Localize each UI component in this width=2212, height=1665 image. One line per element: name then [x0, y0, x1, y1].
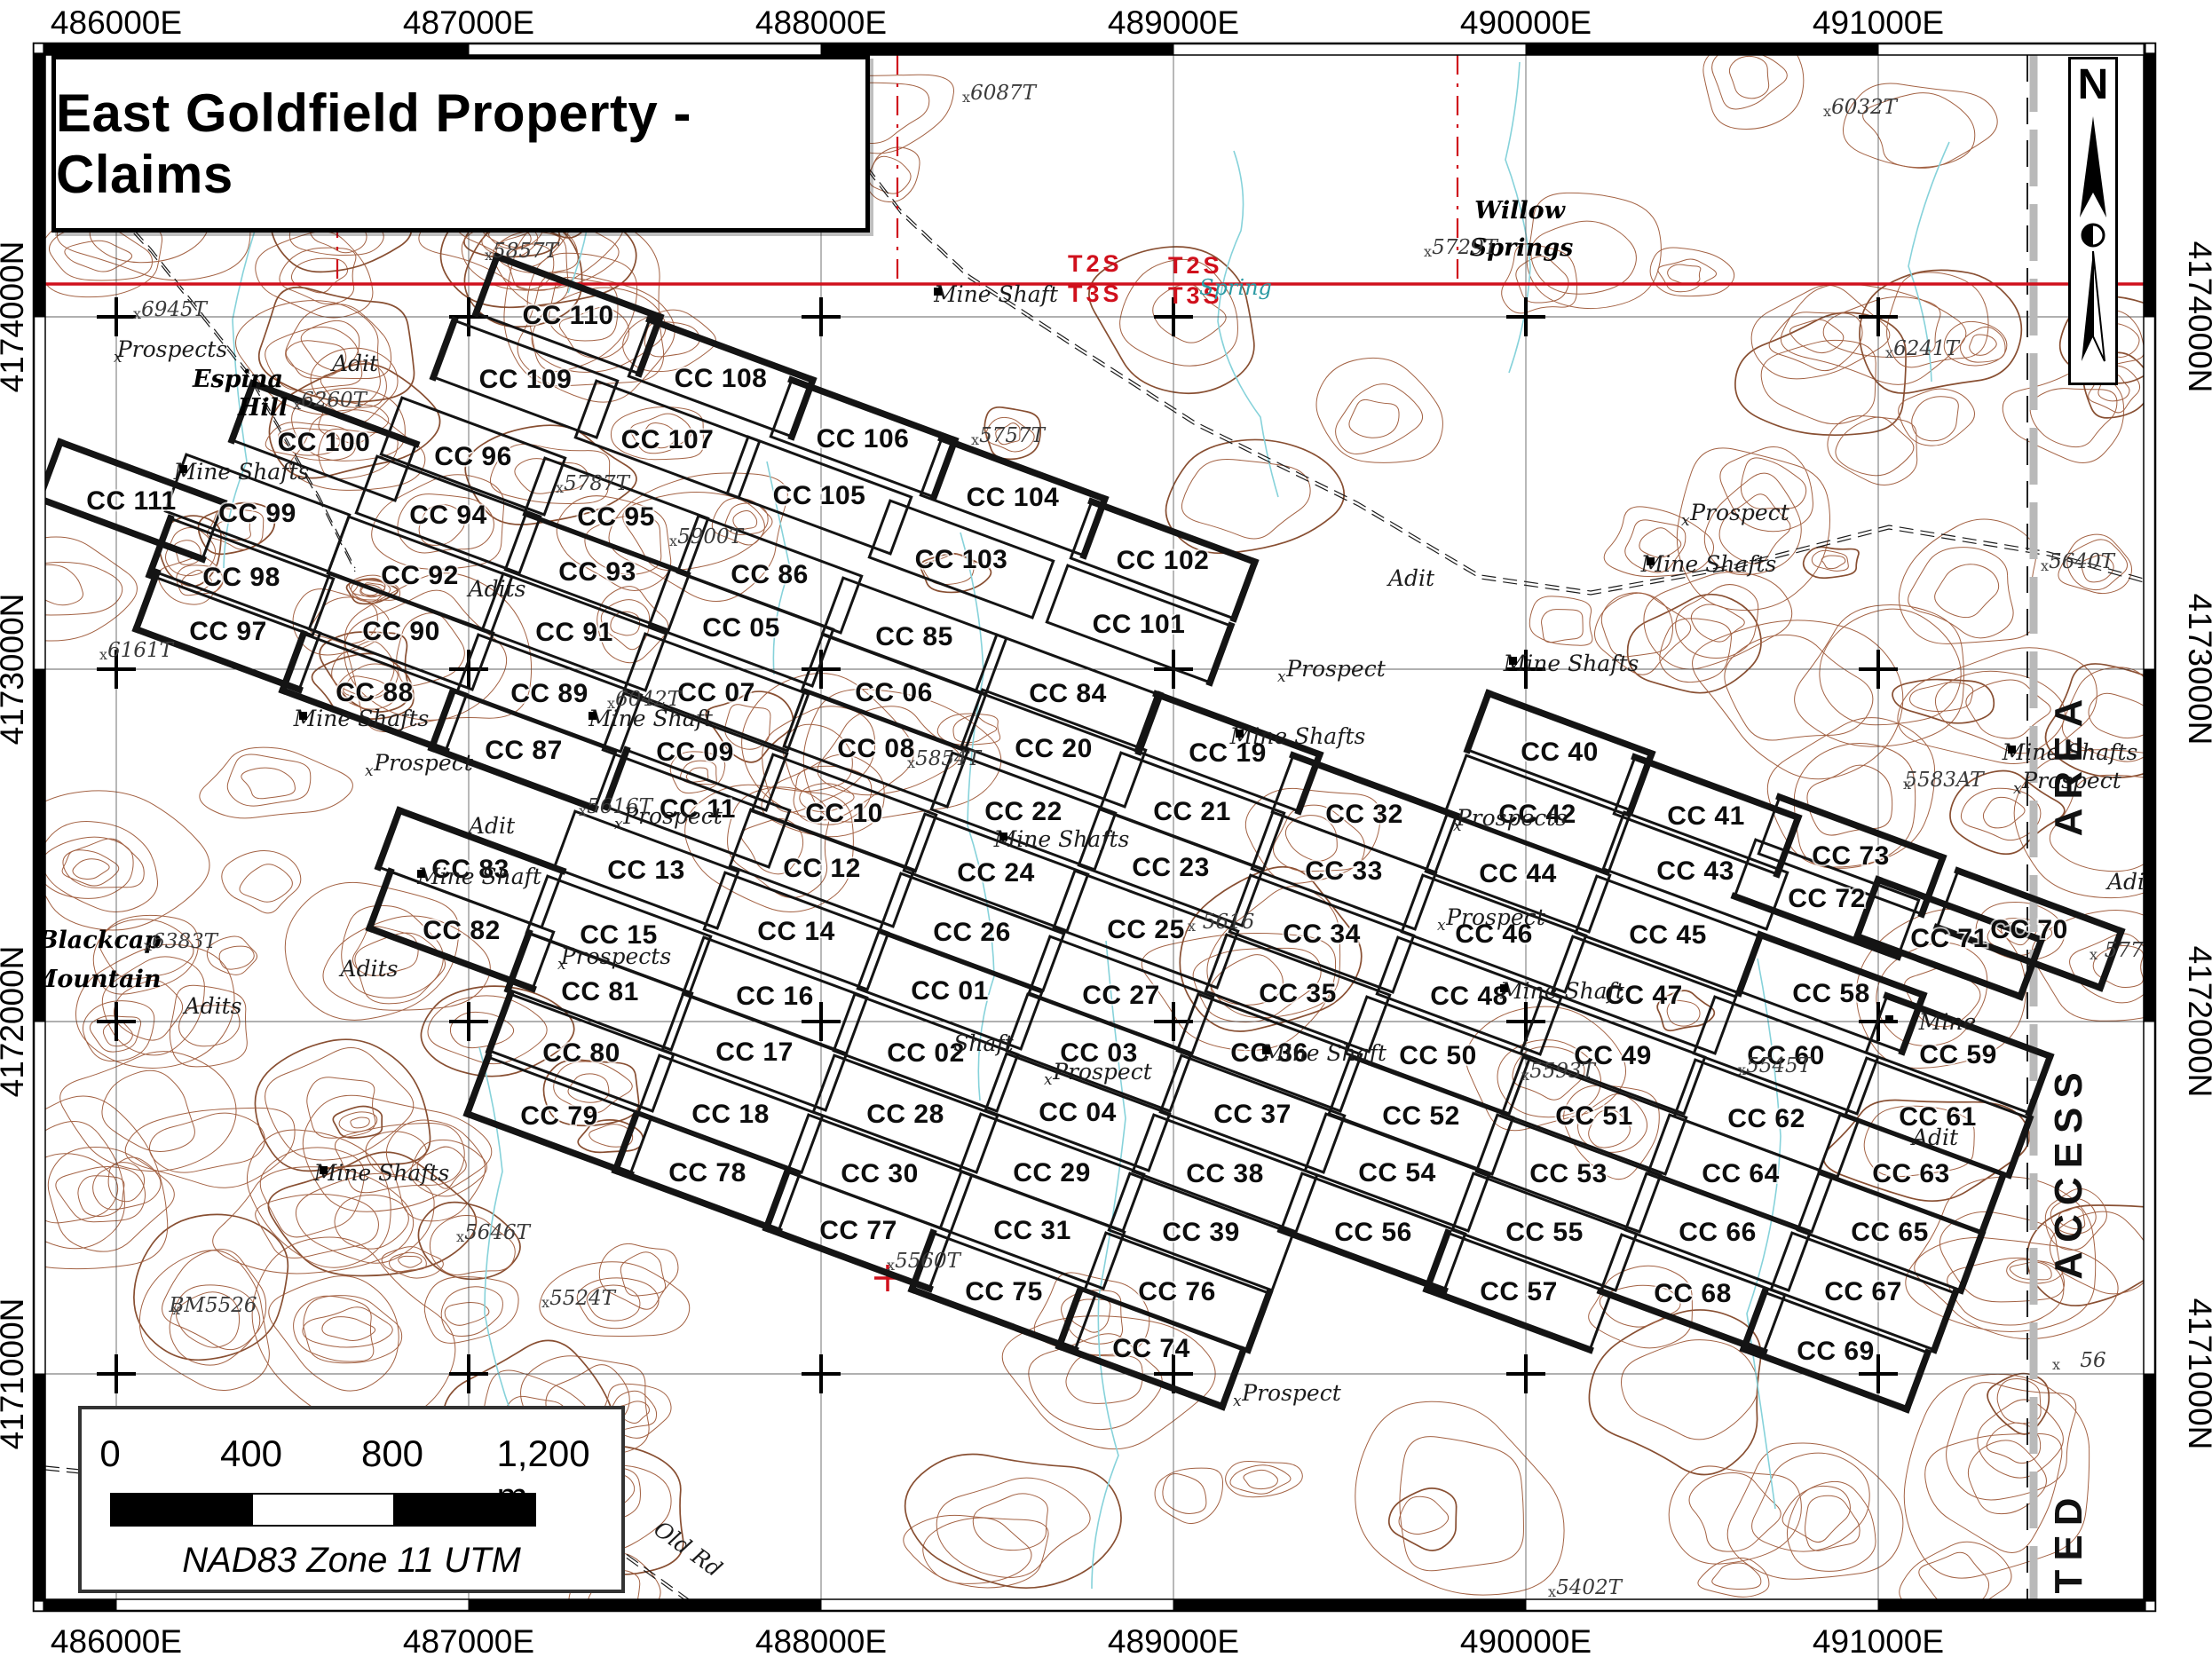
feature-label: Prospects: [116, 336, 227, 362]
claim-label: CC 05: [702, 613, 780, 643]
elevation-x-symbol: x: [144, 937, 152, 954]
claim-label: CC 94: [409, 501, 487, 530]
claim-label: CC 90: [362, 617, 440, 646]
place-label: Hill: [237, 394, 288, 422]
claim-label: CC 106: [817, 424, 910, 454]
elevation-label: 6087T: [970, 82, 1038, 105]
easting-label-bottom: 488000E: [755, 1623, 887, 1660]
claim-label: CC 04: [1039, 1098, 1117, 1127]
claim-label: CC 35: [1259, 979, 1337, 1008]
mine-symbol: [589, 712, 596, 720]
claim-label: CC 101: [1093, 610, 1186, 639]
easting-label-bottom: 490000E: [1460, 1623, 1592, 1660]
feature-label: Adit: [1386, 565, 1435, 591]
claim-label: CC 17: [715, 1038, 794, 1067]
place-label: Willow: [1474, 197, 1567, 225]
elevation-x-symbol: x: [971, 431, 979, 448]
elevation-label: 5857T: [493, 240, 560, 263]
neatline-segment: [1173, 43, 1526, 55]
claim-label: CC 23: [1132, 853, 1210, 882]
mine-symbol: [1885, 1015, 1893, 1023]
claim-label: CC 28: [866, 1100, 944, 1129]
feature-label: Mine Shafts: [993, 826, 1130, 852]
elevation-x-symbol: x: [2090, 946, 2097, 963]
mine-symbol: [1236, 730, 1244, 738]
feature-label: Adit: [467, 813, 516, 839]
feature-label: Prospects: [560, 943, 671, 969]
easting-label-top: 487000E: [403, 4, 534, 41]
claim-label: CC 50: [1399, 1041, 1477, 1070]
neatline-segment: [2144, 1374, 2155, 1611]
feature-label: Adit: [1910, 1124, 1959, 1150]
claim-label: CC 100: [278, 428, 371, 457]
elevation-label: 6260T: [301, 389, 368, 412]
claim-label: CC 37: [1213, 1100, 1292, 1129]
northing-label-left: 4172000N: [0, 946, 30, 1098]
feature-label: Adits: [183, 993, 242, 1019]
easting-label-top: 489000E: [1108, 4, 1239, 41]
feature-label: Prospect: [373, 750, 473, 776]
mine-symbol: [179, 465, 187, 473]
feature-label: Adit: [330, 351, 379, 376]
elevation-label: 6161T: [107, 639, 175, 662]
claim-label: CC 104: [967, 483, 1060, 512]
map-title-box: East Goldfield Property - Claims: [51, 55, 870, 233]
elevation-label: 5787T: [564, 472, 631, 495]
elevation-x-symbol: x: [1424, 243, 1432, 260]
feature-label: Mine Shaft: [1261, 1040, 1387, 1066]
elevation-label: 5900T: [677, 525, 745, 548]
neatline-corner: [34, 43, 43, 53]
elevation-label: 5616: [1203, 911, 1255, 934]
place-label: Blackcap: [37, 927, 162, 954]
claim-label: CC 06: [855, 678, 933, 707]
feature-label: Prospect: [622, 803, 723, 829]
elevation-x-symbol: x: [541, 1294, 549, 1311]
north-label: N: [2071, 59, 2115, 111]
elevation-label: 5545T: [1746, 1054, 1813, 1077]
neatline-corner: [2145, 43, 2155, 53]
prospect-x-symbol: x: [1044, 1071, 1053, 1089]
township-label: T3S: [1068, 280, 1123, 307]
feature-label: Mine Shafts: [1503, 651, 1639, 676]
claim-label: CC 08: [837, 734, 915, 763]
map-page: T2ST2ST3ST3SCC 110CC 109CC 108CC 100CC 9…: [0, 0, 2212, 1665]
elevation-label: 5402T: [1556, 1576, 1623, 1599]
claim-label: CC 70: [1990, 915, 2068, 944]
mine-symbol: [320, 1166, 328, 1174]
neatline-segment: [469, 43, 821, 55]
elevation-label: 5729T: [1432, 236, 1499, 259]
claim-label: CC 81: [561, 977, 639, 1006]
claim-label: CC 09: [656, 738, 734, 767]
prospect-x-symbol: x: [614, 816, 623, 833]
claim-label: CC 57: [1480, 1277, 1558, 1306]
claim-label: CC 103: [915, 545, 1008, 574]
neatline-segment: [2144, 317, 2155, 669]
elevation-x-symbol: x: [1738, 1061, 1746, 1078]
neatline-corner: [2145, 1601, 2155, 1611]
claim-label: CC 91: [535, 618, 613, 647]
place-label: Espina: [192, 366, 283, 393]
northing-label-right: 4172000N: [2182, 946, 2212, 1098]
elevation-x-symbol: x: [962, 89, 970, 106]
claim-label: CC 99: [218, 499, 296, 528]
elevation-label: 6032T: [1831, 96, 1899, 119]
elevation-x-symbol: x: [172, 1301, 180, 1318]
feature-label: Mine Shafts: [1640, 551, 1777, 577]
mine-symbol: [1509, 657, 1517, 665]
claim-label: CC 89: [510, 679, 589, 708]
claim-label: CC 93: [558, 557, 636, 587]
elevation-x-symbol: x: [579, 802, 587, 819]
claim-label: CC 12: [783, 854, 861, 883]
neatline-segment: [34, 1374, 45, 1611]
prospect-x-symbol: x: [1437, 917, 1446, 935]
mine-symbol: [999, 832, 1007, 840]
mine-symbol: [2008, 746, 2016, 754]
elevation-label: 5560T: [895, 1250, 962, 1273]
north-arrow-icon: [2071, 111, 2115, 377]
claim-label: CC 66: [1679, 1218, 1757, 1247]
neatline-segment: [116, 43, 469, 55]
claim-label: CC 85: [875, 622, 953, 651]
feature-label: Mine Shafts: [1229, 723, 1366, 749]
mine-symbol: [299, 712, 307, 720]
feature-label: Mine Shaft: [933, 281, 1059, 307]
elevation-x-symbol: x: [1885, 344, 1893, 361]
claim-label: CC 92: [381, 561, 459, 590]
claim-label: CC 59: [1919, 1040, 1997, 1069]
claim-label: CC 102: [1117, 546, 1210, 575]
claim-label: CC 105: [773, 481, 866, 510]
elevation-x-symbol: x: [1521, 1067, 1529, 1084]
mine-symbol: [1647, 557, 1655, 565]
claim-label: CC 24: [957, 858, 1035, 888]
claim-label: CC 111: [86, 486, 176, 516]
claim-label: CC 58: [1792, 979, 1870, 1008]
neatline-segment: [34, 669, 45, 1022]
claim-label: CC 54: [1358, 1158, 1436, 1188]
easting-label-bottom: 486000E: [51, 1623, 182, 1660]
claim-label: CC 76: [1138, 1277, 1216, 1306]
neatline-segment: [821, 1599, 1173, 1611]
prospect-x-symbol: x: [1233, 1393, 1242, 1410]
claim-label: CC 79: [520, 1101, 598, 1131]
elevation-x-symbol: x: [556, 479, 564, 496]
claim-label: CC 30: [841, 1159, 919, 1188]
claim-label: CC 43: [1656, 856, 1734, 886]
claim-label: CC 65: [1851, 1218, 1929, 1247]
claim-label: CC 29: [1013, 1158, 1091, 1188]
easting-label-top: 486000E: [51, 4, 182, 41]
claim-label: CC 34: [1283, 919, 1361, 949]
elevation-label: 5646T: [464, 1221, 532, 1244]
claim-label: CC 22: [984, 797, 1063, 826]
township-label: T2S: [1068, 250, 1123, 277]
claim-label: CC 97: [189, 617, 267, 646]
elevation-label: 5593T: [1529, 1060, 1597, 1083]
elevation-label: 6945T: [141, 298, 209, 321]
prospect-x-symbol: x: [1681, 512, 1690, 530]
claim-label: CC 25: [1107, 915, 1185, 944]
map-title: East Goldfield Property - Claims: [56, 83, 865, 205]
claim-label: CC 110: [522, 301, 613, 330]
claim-label: CC 72: [1788, 884, 1866, 913]
claim-label: CC 56: [1334, 1218, 1412, 1247]
elevation-x-symbol: x: [907, 754, 915, 771]
claim-label: CC 73: [1812, 841, 1890, 871]
elevation-x-symbol: x: [1823, 103, 1831, 120]
claim-label: CC 53: [1529, 1159, 1608, 1188]
prospect-x-symbol: x: [2013, 780, 2022, 798]
elevation-label: 56: [2080, 1349, 2105, 1372]
claim-label: CC 40: [1521, 738, 1599, 767]
neatline-segment: [34, 43, 45, 317]
claim-label: CC 69: [1797, 1337, 1875, 1366]
claim-label: CC 38: [1186, 1159, 1264, 1188]
claim-label: CC 82: [423, 916, 501, 945]
claim-label: CC 45: [1629, 920, 1707, 950]
claim-label: CC 44: [1479, 859, 1557, 888]
neatline-segment: [1878, 43, 2155, 55]
northing-label-left: 4174000N: [0, 241, 30, 393]
northing-label-left: 4171000N: [0, 1298, 30, 1450]
neatline-segment: [34, 1022, 45, 1374]
easting-label-bottom: 489000E: [1108, 1623, 1239, 1660]
elevation-x-symbol: x: [293, 396, 301, 413]
water-label: Spring: [1199, 275, 1272, 300]
claim-label: CC 86: [731, 560, 809, 589]
mine-symbol: [1262, 1046, 1270, 1054]
claim-label: CC 16: [736, 982, 814, 1011]
elevation-label: 5583AT: [1904, 769, 1985, 792]
scale-tick-800: 800: [361, 1432, 423, 1475]
neatline-segment: [34, 1599, 116, 1611]
prospect-x-symbol: x: [365, 762, 374, 780]
claim-label: CC 01: [911, 976, 989, 1006]
prospect-x-symbol: x: [557, 956, 566, 974]
feature-label: Adits: [467, 576, 526, 602]
feature-label: Prospect: [1052, 1059, 1152, 1085]
claim-label: CC 107: [621, 425, 715, 454]
easting-label-top: 491000E: [1813, 4, 1944, 41]
claim-label: CC 88: [336, 678, 414, 707]
scale-tick-400: 400: [220, 1432, 282, 1475]
elevation-x-symbol: x: [669, 533, 677, 549]
feature-label: Prospect: [1285, 656, 1386, 682]
claim-label: CC 96: [434, 442, 512, 471]
elevation-label: 6383T: [152, 930, 219, 953]
claim-label: CC 52: [1382, 1101, 1460, 1131]
neatline-segment: [2144, 43, 2155, 317]
claim-label: CC 63: [1872, 1159, 1950, 1188]
claim-label: CC 13: [607, 856, 685, 885]
claim-label: CC 14: [757, 917, 835, 946]
neatline-segment: [821, 43, 1173, 55]
claim-label: CC 109: [479, 365, 573, 394]
elevation-label: 5524T: [549, 1287, 617, 1310]
claim-label: CC 78: [668, 1158, 747, 1188]
elevation-x-symbol: x: [2052, 1356, 2060, 1373]
claim-label: CC 33: [1305, 856, 1383, 886]
restricted-area-label-word: ACCESS: [2047, 1063, 2090, 1279]
claim-label: CC 07: [677, 678, 755, 707]
claim-label: CC 87: [485, 736, 563, 765]
feature-label: Mine: [1918, 1009, 1977, 1035]
claim-label: CC 41: [1667, 801, 1745, 831]
claim-label: CC 68: [1654, 1279, 1732, 1308]
elevation-x-symbol: x: [99, 646, 107, 663]
easting-label-bottom: 487000E: [403, 1623, 534, 1660]
elevation-x-symbol: x: [1188, 918, 1196, 935]
claim-label: CC 21: [1153, 797, 1231, 826]
easting-label-bottom: 491000E: [1813, 1623, 1944, 1660]
northing-label-left: 4173000N: [0, 594, 30, 746]
neatline-segment: [1526, 1599, 1878, 1611]
elevation-x-symbol: x: [2041, 557, 2049, 574]
neatline-segment: [1173, 1599, 1526, 1611]
claim-label: CC 51: [1555, 1101, 1633, 1131]
claim-label: CC 75: [965, 1277, 1043, 1306]
elevation-x-symbol: x: [1548, 1583, 1556, 1600]
claim-label: CC 27: [1082, 981, 1160, 1010]
claim-label: CC 31: [993, 1216, 1071, 1245]
feature-label: Prospect: [1689, 500, 1789, 525]
claim-label: CC 95: [577, 502, 655, 532]
feature-label: Mine Shaft: [588, 706, 714, 731]
mine-symbol: [417, 870, 425, 878]
feature-label: Mine Shafts: [293, 706, 430, 731]
neatline-corner: [34, 1601, 43, 1611]
claim-label: CC 77: [819, 1216, 897, 1245]
claim-label: CC 80: [542, 1038, 620, 1068]
claim-label: CC 55: [1505, 1218, 1584, 1247]
elevation-label: 5640T: [2049, 550, 2116, 573]
claim-label: CC 39: [1162, 1218, 1240, 1247]
easting-label-top: 490000E: [1460, 4, 1592, 41]
claim-label: CC 20: [1015, 734, 1093, 763]
neatline-segment: [2144, 669, 2155, 1022]
claim-label: CC 71: [1910, 924, 1988, 953]
scale-bar: [110, 1493, 536, 1527]
feature-label: Shaft: [953, 1030, 1014, 1056]
claim-label: CC 84: [1029, 679, 1107, 708]
elevation-x-symbol: x: [887, 1257, 895, 1274]
feature-label: Mine Shafts: [313, 1160, 450, 1186]
north-arrow-box: N: [2068, 57, 2118, 385]
feature-label: Mine Shafts: [173, 459, 310, 485]
claim-label: CC 98: [202, 563, 280, 592]
mine-symbol: [934, 288, 942, 296]
restricted-area-label-word: AREA: [2047, 690, 2090, 837]
claim-label: CC 64: [1702, 1159, 1780, 1188]
feature-label: Mine Shaft: [416, 864, 542, 889]
claim-label: CC 67: [1824, 1277, 1902, 1306]
feature-label: Prospect: [1445, 904, 1545, 930]
neatline-segment: [469, 1599, 821, 1611]
feature-label: Adits: [339, 956, 399, 982]
datum-note: NAD83 Zone 11 UTM: [82, 1541, 621, 1581]
feature-label: Prospects: [1456, 805, 1567, 831]
scale-bar-box: 0 400 800 1,200 m NAD83 Zone 11 UTM: [78, 1406, 625, 1593]
elevation-x-symbol: x: [485, 247, 493, 264]
elevation-label: 6241T: [1893, 337, 1961, 360]
prospect-x-symbol: x: [1453, 817, 1462, 835]
neatline-segment: [34, 317, 45, 669]
mine-symbol: [1500, 984, 1508, 992]
feature-label: Prospect: [1241, 1380, 1341, 1406]
neatline-segment: [2144, 1022, 2155, 1374]
claim-label: CC 62: [1727, 1104, 1805, 1133]
claim-label: CC 10: [805, 799, 883, 828]
elevation-x-symbol: x: [456, 1228, 464, 1245]
claim-label: CC 48: [1430, 982, 1508, 1011]
elevation-x-symbol: x: [133, 305, 141, 322]
northing-label-right: 4174000N: [2182, 241, 2212, 393]
elevation-label: 5854T: [915, 747, 983, 770]
neatline-segment: [34, 43, 116, 55]
claim-label: CC 32: [1325, 800, 1403, 829]
prospect-x-symbol: x: [1277, 668, 1286, 686]
neatline-segment: [1526, 43, 1878, 55]
claim-label: CC 26: [933, 918, 1011, 947]
neatline-segment: [116, 1599, 469, 1611]
claim-label: CC 74: [1112, 1334, 1190, 1363]
elevation-label: 5757T: [979, 424, 1047, 447]
northing-label-right: 4171000N: [2182, 1298, 2212, 1450]
neatline-segment: [1878, 1599, 2155, 1611]
elevation-label: BM5526: [169, 1294, 257, 1317]
feature-label: Mine Shaft: [1499, 978, 1625, 1004]
prospect-x-symbol: x: [114, 349, 122, 367]
northing-label-right: 4173000N: [2182, 594, 2212, 746]
scale-tick-0: 0: [99, 1432, 120, 1475]
elevation-x-symbol: x: [1903, 776, 1911, 793]
easting-label-top: 488000E: [755, 4, 887, 41]
claim-label: CC 108: [675, 364, 768, 393]
claim-label: CC 18: [691, 1100, 770, 1129]
place-label: Mountain: [29, 966, 161, 993]
